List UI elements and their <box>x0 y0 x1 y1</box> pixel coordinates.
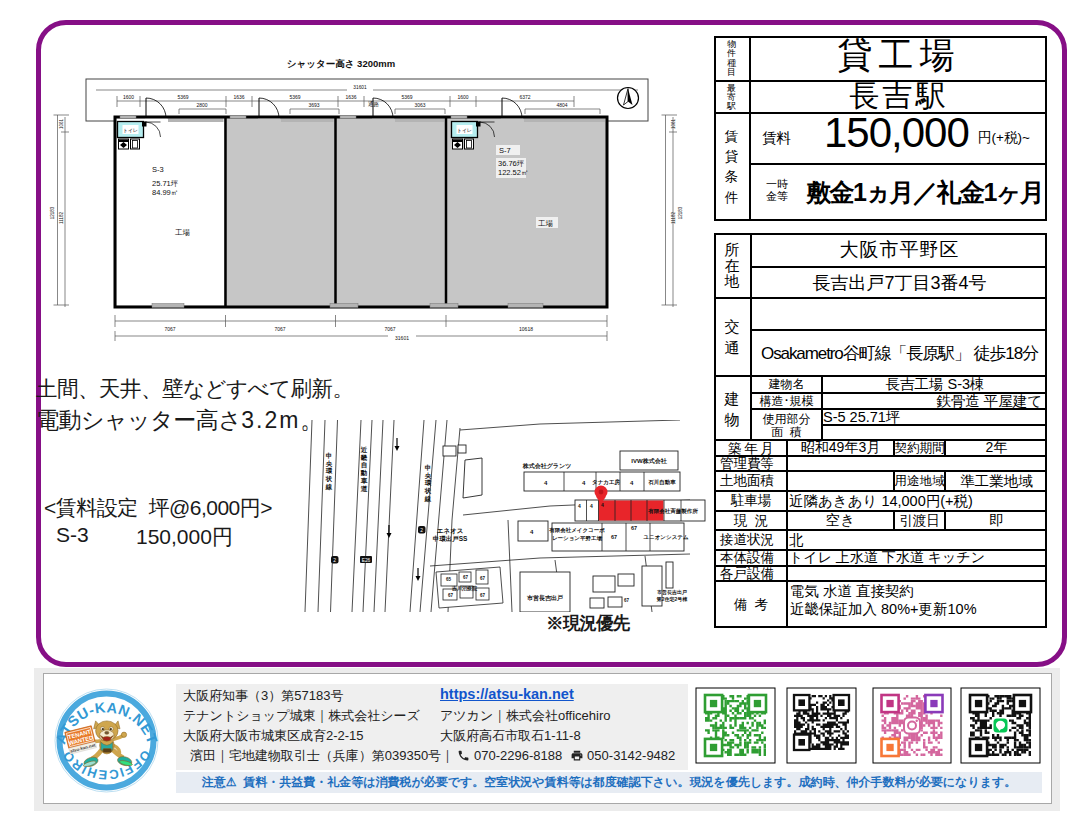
svg-text:中: 中 <box>425 464 432 471</box>
svg-text:環: 環 <box>424 479 432 486</box>
svg-text:67: 67 <box>448 593 454 598</box>
svg-text:E26: E26 <box>362 558 371 563</box>
svg-text:1061: 1061 <box>671 118 676 129</box>
svg-text:67: 67 <box>631 525 637 531</box>
svg-text:レーション平野工場: レーション平野工場 <box>552 535 603 542</box>
svg-text:畿: 畿 <box>361 454 368 461</box>
svg-text:25.71坪: 25.71坪 <box>152 179 179 188</box>
svg-text:工場: 工場 <box>175 228 191 237</box>
svg-text:トイレ: トイレ <box>123 127 138 133</box>
svg-text:市営長吉出戸: 市営長吉出戸 <box>657 589 687 596</box>
svg-text:石川自動車: 石川自動車 <box>647 479 676 486</box>
svg-text:線: 線 <box>424 495 432 503</box>
svg-text:線: 線 <box>325 483 333 491</box>
svg-text:第2住宅2号棟: 第2住宅2号棟 <box>656 596 689 603</box>
svg-text:近: 近 <box>360 446 368 453</box>
svg-text:有限会社斉藤製作所: 有限会社斉藤製作所 <box>647 508 698 515</box>
svg-text:10618: 10618 <box>519 326 533 332</box>
svg-text:65: 65 <box>446 577 452 582</box>
svg-text:7067: 7067 <box>384 326 395 332</box>
svg-text:12183: 12183 <box>678 206 683 219</box>
svg-text:中環出戸SS: 中環出戸SS <box>433 535 468 543</box>
svg-text:1600: 1600 <box>123 94 134 100</box>
svg-text:11182: 11182 <box>671 212 676 224</box>
svg-text:5369: 5369 <box>177 94 188 100</box>
svg-text:車: 車 <box>361 477 368 484</box>
svg-text:1636: 1636 <box>345 94 356 100</box>
svg-text:S-3: S-3 <box>152 165 164 174</box>
svg-text:有限会社メイクコーポ: 有限会社メイクコーポ <box>548 527 605 534</box>
svg-text:1636: 1636 <box>233 94 244 100</box>
svg-text:67: 67 <box>624 598 630 603</box>
svg-text:67: 67 <box>611 534 617 540</box>
svg-text:7067: 7067 <box>274 326 285 332</box>
svg-text:1061: 1061 <box>59 118 64 129</box>
svg-text:道: 道 <box>361 485 368 492</box>
svg-text:IVW株式会社: IVW株式会社 <box>631 457 667 465</box>
svg-text:67: 67 <box>463 575 469 580</box>
svg-text:5369: 5369 <box>401 94 412 100</box>
svg-text:エネオス: エネオス <box>437 527 464 535</box>
svg-text:4: 4 <box>578 503 581 509</box>
svg-text:67: 67 <box>480 576 486 581</box>
svg-text:11182: 11182 <box>59 212 64 224</box>
svg-text:5369: 5369 <box>289 94 300 100</box>
svg-text:市営長吉出戸: 市営長吉出戸 <box>526 594 563 602</box>
svg-text:84.99㎡: 84.99㎡ <box>152 188 178 197</box>
svg-text:122.52㎡: 122.52㎡ <box>498 168 528 177</box>
svg-text:4804: 4804 <box>556 102 567 108</box>
svg-text:31601: 31601 <box>395 335 409 341</box>
svg-text:S-7: S-7 <box>499 146 511 155</box>
svg-text:1600: 1600 <box>457 94 468 100</box>
svg-text:吉川沼療院: 吉川沼療院 <box>451 585 477 592</box>
svg-text:トイレ: トイレ <box>457 127 472 133</box>
svg-text:通路: 通路 <box>368 100 380 107</box>
svg-text:中: 中 <box>326 452 333 459</box>
svg-text:シャッター高さ 3200mm: シャッター高さ 3200mm <box>287 58 395 69</box>
svg-text:4: 4 <box>590 503 593 509</box>
svg-text:2800: 2800 <box>196 102 207 108</box>
svg-text:31601: 31601 <box>353 85 367 90</box>
svg-text:2: 2 <box>420 527 423 533</box>
svg-text:工場: 工場 <box>538 219 554 228</box>
svg-text:2: 2 <box>333 557 336 563</box>
svg-text:67: 67 <box>480 593 486 598</box>
svg-text:36.76坪: 36.76坪 <box>498 159 525 168</box>
svg-text:タナカ工房: タナカ工房 <box>592 479 620 486</box>
svg-text:6372: 6372 <box>519 94 530 100</box>
svg-text:12183: 12183 <box>50 206 55 219</box>
svg-text:3693: 3693 <box>308 102 319 108</box>
svg-text:7067: 7067 <box>164 326 175 332</box>
svg-text:環: 環 <box>325 467 333 474</box>
svg-text:ユニオンシステム: ユニオンシステム <box>642 534 688 541</box>
svg-text:株式会社グランツ: 株式会社グランツ <box>522 462 572 470</box>
svg-text:3063: 3063 <box>414 102 425 108</box>
